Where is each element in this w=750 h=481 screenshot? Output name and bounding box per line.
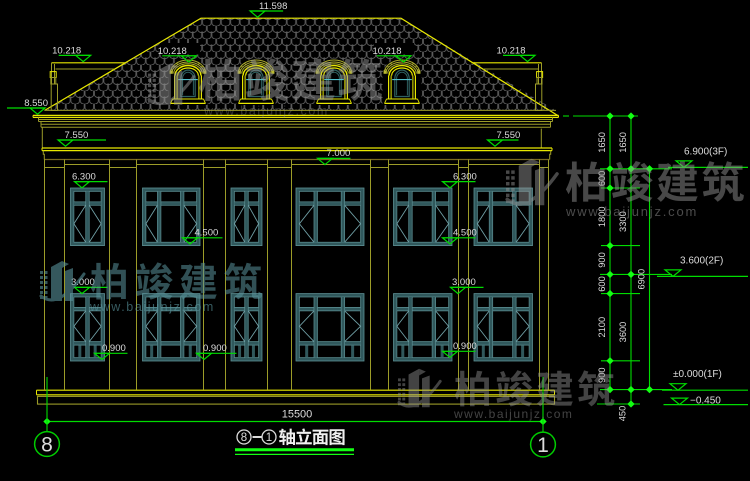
svg-text:3600: 3600 [618, 322, 628, 343]
svg-text:8.550: 8.550 [24, 98, 48, 109]
svg-text:10.218: 10.218 [158, 46, 187, 57]
svg-text:7.550: 7.550 [65, 130, 89, 141]
svg-text:6900: 6900 [637, 269, 647, 290]
svg-text:−0.450: −0.450 [690, 396, 721, 407]
svg-text:www.baijunjz.com: www.baijunjz.com [453, 407, 573, 421]
svg-text:3.600(2F): 3.600(2F) [680, 256, 723, 267]
svg-text:6.300: 6.300 [72, 171, 96, 182]
svg-text:6.900(3F): 6.900(3F) [684, 147, 727, 158]
svg-text:0.900: 0.900 [203, 343, 227, 354]
svg-text:www.baijunjz.com: www.baijunjz.com [89, 300, 215, 314]
svg-text:10.218: 10.218 [372, 46, 401, 57]
svg-text:1: 1 [266, 432, 272, 444]
svg-text:6.300: 6.300 [453, 171, 477, 182]
svg-text:4.500: 4.500 [195, 228, 219, 239]
svg-text:8: 8 [241, 432, 247, 444]
svg-text:450: 450 [618, 406, 628, 422]
svg-text:3.000: 3.000 [452, 277, 476, 288]
svg-text:0.900: 0.900 [453, 341, 477, 352]
svg-text:www.baijunjz.com: www.baijunjz.com [203, 104, 329, 118]
svg-text:±0.000(1F): ±0.000(1F) [673, 369, 722, 380]
svg-text:8: 8 [41, 434, 53, 457]
svg-text:7.000: 7.000 [327, 148, 351, 159]
svg-text:2100: 2100 [597, 317, 607, 338]
svg-text:600: 600 [597, 276, 607, 292]
svg-text:15500: 15500 [282, 409, 313, 421]
svg-text:7.550: 7.550 [497, 130, 521, 141]
svg-text:4.500: 4.500 [453, 228, 477, 239]
svg-text:10.218: 10.218 [52, 46, 81, 57]
svg-text:1650: 1650 [597, 132, 607, 153]
svg-text:1: 1 [537, 434, 549, 457]
svg-text:www.baijunjz.com: www.baijunjz.com [565, 204, 698, 219]
svg-text:11.598: 11.598 [259, 1, 287, 12]
svg-text:1650: 1650 [618, 132, 628, 153]
svg-text:0.900: 0.900 [102, 343, 126, 354]
svg-text:10.218: 10.218 [496, 46, 525, 57]
svg-text:900: 900 [597, 252, 607, 268]
